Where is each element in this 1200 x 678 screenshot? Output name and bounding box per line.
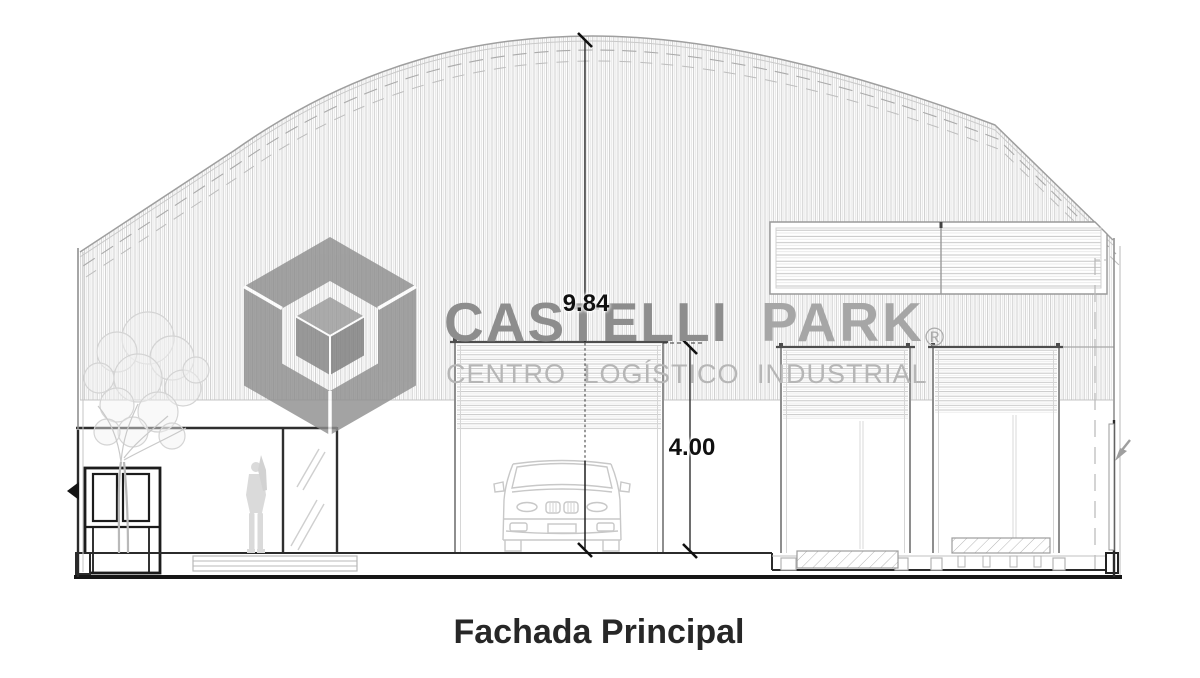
security-guard-figure: [246, 455, 267, 553]
dock-pit-end-wall: [1106, 553, 1118, 573]
roller-shutter-slats: [935, 349, 1057, 413]
section-marker-arrow: [67, 482, 79, 500]
watermark-tagline: CENTRO LOGÍSTICO INDUSTRIAL: [446, 361, 928, 388]
loading-dock-ramp: [797, 551, 898, 568]
elevation-sheet: CASTELLI PARK ® CENTRO LOGÍSTICO INDUSTR…: [0, 0, 1200, 678]
downspout: [1109, 424, 1114, 550]
bench: [193, 556, 357, 571]
leader-arrow-icon: [1115, 448, 1127, 461]
glass-entry-door: [291, 449, 325, 550]
watermark-brand-secondary: PARK: [761, 295, 925, 350]
guard-kiosk: [85, 468, 160, 573]
dimension-label-ridge-height: 9.84: [563, 292, 610, 316]
louver-panel: [770, 222, 1107, 294]
dimension-label-door-height: 4.00: [669, 436, 716, 460]
drawing-caption: Fachada Principal: [454, 615, 745, 649]
registered-trademark-symbol: ®: [925, 324, 944, 350]
loading-dock-platform: [952, 538, 1050, 567]
